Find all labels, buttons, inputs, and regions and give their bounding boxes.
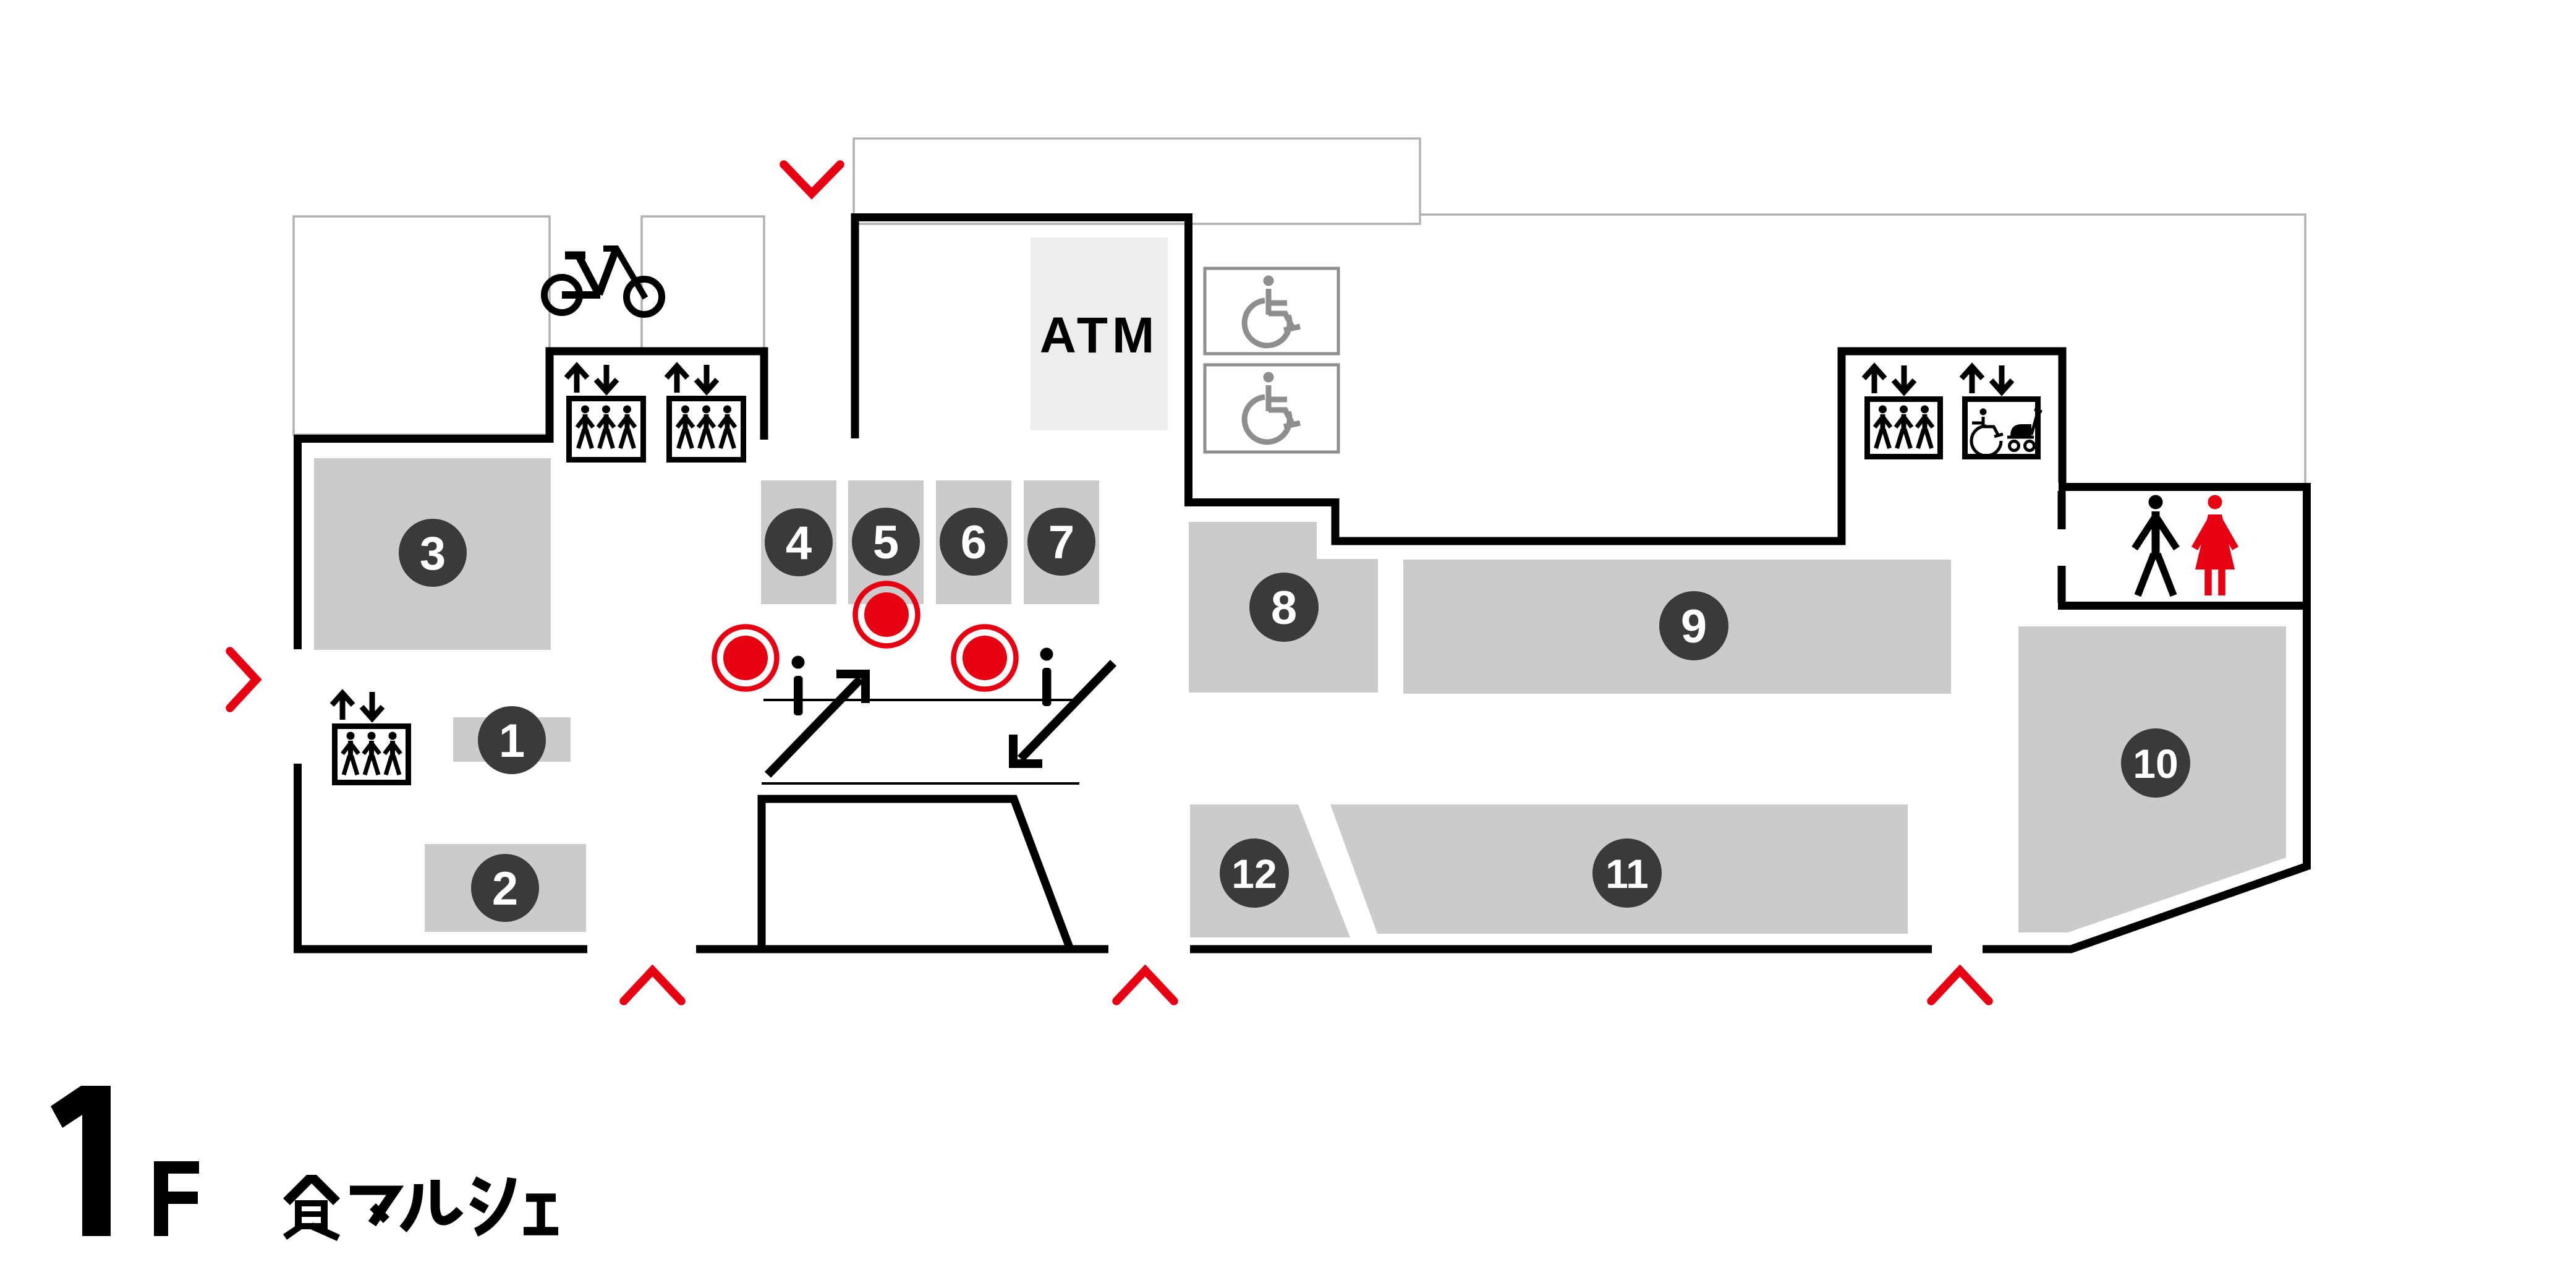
svg-text:4: 4 bbox=[786, 517, 812, 569]
svg-text:7: 7 bbox=[1048, 516, 1074, 569]
svg-text:11: 11 bbox=[1605, 851, 1649, 897]
svg-text:9: 9 bbox=[1681, 600, 1707, 653]
svg-text:1: 1 bbox=[499, 715, 525, 767]
svg-text:ATM: ATM bbox=[1040, 307, 1159, 364]
svg-text:3: 3 bbox=[420, 527, 446, 580]
svg-text:2: 2 bbox=[492, 863, 518, 915]
svg-text:6: 6 bbox=[961, 516, 987, 569]
svg-text:8: 8 bbox=[1271, 582, 1297, 634]
svg-text:10: 10 bbox=[2133, 741, 2178, 787]
svg-text:12: 12 bbox=[1231, 851, 1277, 897]
svg-text:5: 5 bbox=[873, 516, 899, 569]
